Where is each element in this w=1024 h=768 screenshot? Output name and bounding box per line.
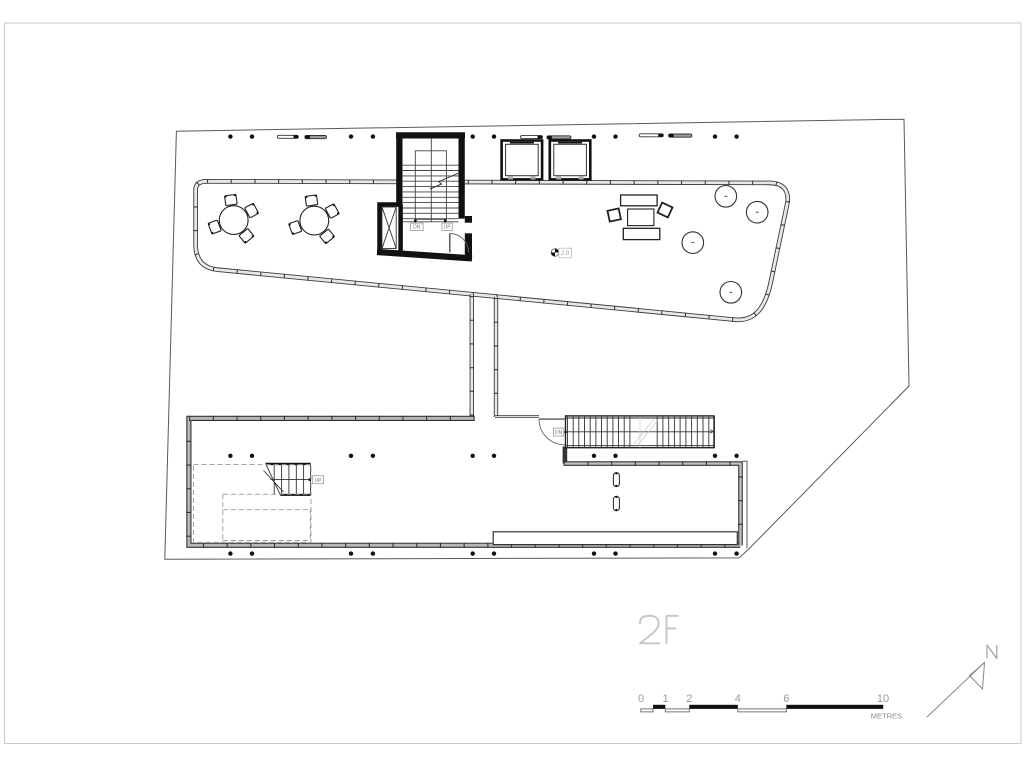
svg-text:2.0: 2.0 <box>561 251 570 257</box>
svg-text:10: 10 <box>877 693 889 705</box>
svg-text:1: 1 <box>662 693 668 705</box>
svg-text:DN: DN <box>555 430 563 436</box>
svg-text:6: 6 <box>783 693 789 705</box>
svg-text:METRES: METRES <box>871 712 902 721</box>
svg-text:DN: DN <box>413 225 421 231</box>
svg-text:UP: UP <box>444 225 452 231</box>
svg-text:UP: UP <box>315 478 323 484</box>
svg-text:2: 2 <box>686 693 692 705</box>
svg-text:4: 4 <box>735 693 741 705</box>
svg-text:0: 0 <box>638 693 644 705</box>
